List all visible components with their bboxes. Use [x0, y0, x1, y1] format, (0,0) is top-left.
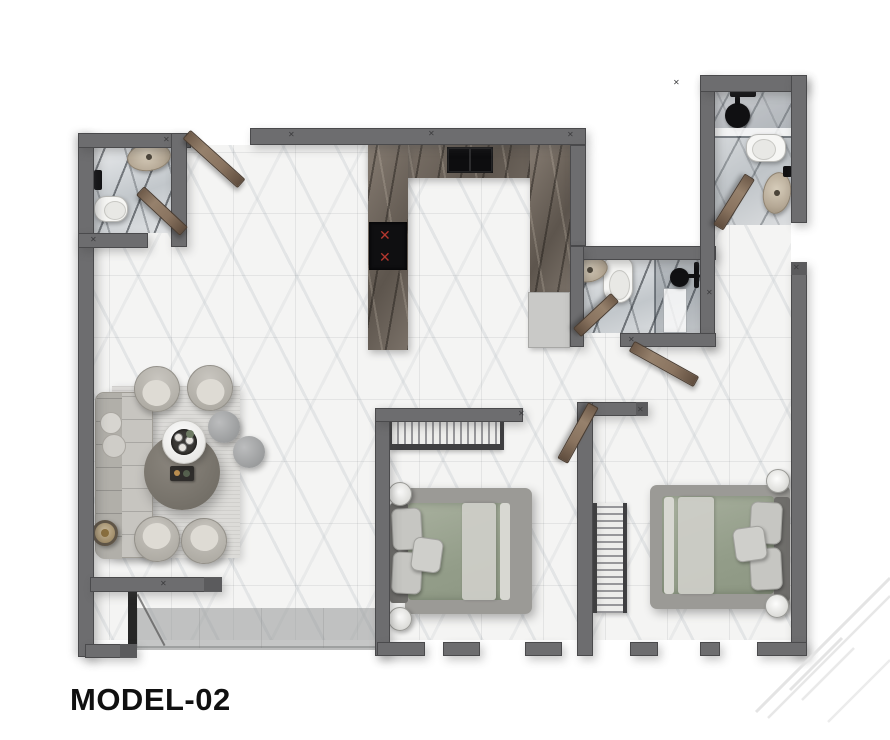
- wall: [78, 233, 148, 248]
- side-table: [92, 520, 118, 546]
- plate: [174, 433, 183, 442]
- dimension-tick: ✕: [637, 406, 644, 414]
- dimension-tick: ✕: [793, 264, 800, 272]
- armchair-seat: [195, 377, 226, 406]
- wall: [570, 145, 586, 246]
- wardrobe-rail: [623, 503, 627, 613]
- dimension-tick: ✕: [518, 410, 525, 418]
- armchair-seat: [141, 378, 172, 408]
- shower-tray: [663, 288, 687, 333]
- sofa-pillow: [102, 434, 126, 458]
- window-stub: [630, 642, 658, 656]
- dimension-tick: ✕: [628, 336, 635, 344]
- refrigerator: [528, 292, 570, 348]
- kitchen-counter-right: [530, 145, 570, 292]
- wall: [375, 408, 523, 422]
- sink-basin-right: [471, 149, 491, 171]
- bed-1-blanket-fold: [462, 503, 496, 600]
- nightstand: [766, 469, 790, 493]
- bed-1-sheet-edge: [500, 503, 510, 600]
- armchair-seat: [141, 522, 172, 551]
- kitchen-sink: [447, 147, 493, 173]
- bed-2-sheet-edge: [664, 497, 674, 594]
- wardrobe-rail: [593, 503, 597, 613]
- window-stub: [443, 642, 480, 656]
- wall-cap: [204, 577, 222, 592]
- cooktop: ✕ ✕: [369, 222, 407, 270]
- cistern: [94, 170, 102, 190]
- sink-drain: [774, 190, 781, 197]
- shower-head: [725, 103, 750, 128]
- dimension-tick: ✕: [163, 136, 170, 144]
- tray-item: [174, 470, 180, 476]
- bed-2-blanket-fold: [678, 497, 714, 594]
- sink-basin-left: [449, 149, 469, 171]
- dimension-tick: ✕: [288, 131, 295, 139]
- bed-2-accent-pillow: [732, 525, 768, 563]
- bed-1-accent-pillow: [410, 536, 444, 574]
- burner-icon: ✕: [379, 227, 391, 244]
- toilet: [94, 196, 128, 222]
- sink-drain: [146, 154, 153, 161]
- plan-title: MODEL-02: [70, 682, 231, 718]
- dimension-tick: ✕: [428, 130, 435, 138]
- wardrobe-end: [500, 420, 504, 450]
- entry-door-frame: [128, 592, 137, 646]
- shower-head: [670, 268, 689, 287]
- window-stub: [525, 642, 562, 656]
- plate: [178, 443, 187, 452]
- shower-glass-line: [654, 260, 656, 333]
- wall: [375, 408, 390, 656]
- window-stub: [757, 642, 807, 656]
- dimension-tick: ✕: [673, 79, 680, 87]
- wall: [570, 246, 716, 260]
- terrace-shadow: [137, 608, 377, 648]
- wall: [791, 75, 807, 223]
- window-stub: [700, 642, 720, 656]
- tray-item: [183, 470, 190, 477]
- dimension-tick: ✕: [567, 131, 574, 139]
- dimension-tick: ✕: [706, 289, 713, 297]
- dimension-tick: ✕: [90, 236, 97, 244]
- table-tray: [170, 466, 194, 481]
- void-shaft: [586, 118, 700, 246]
- toilet-bowl: [104, 201, 126, 220]
- pouf: [208, 411, 240, 443]
- side-table-center: [101, 529, 109, 537]
- burner-icon: ✕: [379, 249, 391, 266]
- wall: [700, 75, 715, 347]
- nightstand: [388, 482, 412, 506]
- armchair-seat: [189, 523, 220, 552]
- wall: [791, 262, 807, 656]
- dimension-tick: ✕: [160, 580, 167, 588]
- sink-drain: [586, 266, 593, 273]
- wall-cap: [120, 644, 137, 658]
- toilet-bowl: [752, 139, 776, 160]
- decor-tray: [171, 429, 197, 455]
- nightstand: [765, 594, 789, 618]
- nightstand: [388, 607, 412, 631]
- toilet: [746, 134, 786, 162]
- sofa-pillow: [100, 412, 122, 434]
- floor-plan-canvas: ✕ ✕: [0, 0, 890, 740]
- window-stub: [377, 642, 425, 656]
- shower-valve: [694, 262, 699, 288]
- wall: [90, 577, 222, 592]
- pouf: [233, 436, 265, 468]
- window-sill-line: [137, 646, 377, 650]
- wall: [250, 128, 586, 145]
- wardrobe-rail: [390, 444, 502, 450]
- greenery: [186, 430, 194, 438]
